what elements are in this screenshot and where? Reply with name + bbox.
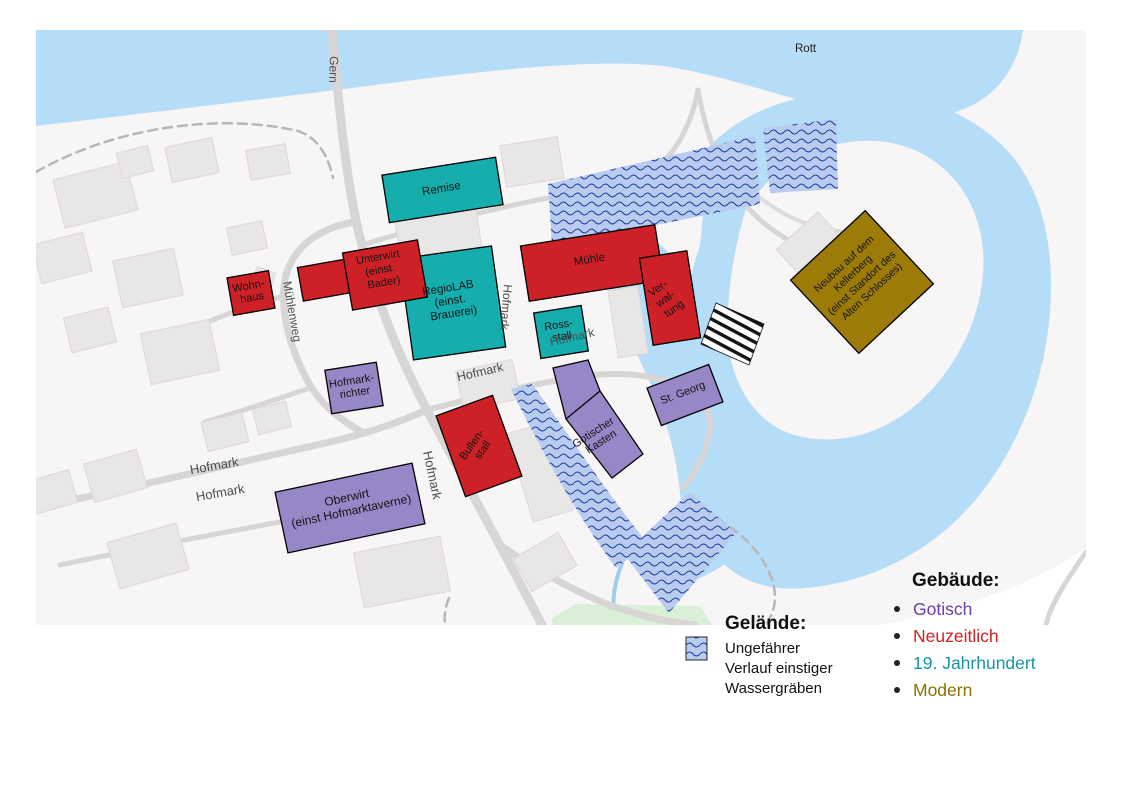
- legend-terrain-line-2: Verlauf einstiger: [725, 660, 833, 677]
- bullet-icon: [894, 687, 900, 693]
- water-ditch-area-northeast: [763, 119, 838, 193]
- map-canvas: Remise RegioLAB (einst. Brauerei) Ross- …: [26, 30, 1086, 625]
- legend-buildings-title: Gebäude:: [912, 570, 1000, 591]
- legend-item-modern: Modern: [913, 680, 972, 700]
- legend-terrain-line-3: Wassergräben: [725, 680, 822, 697]
- legend-terrain-swatch: [686, 637, 707, 660]
- bullet-icon: [894, 660, 900, 666]
- historic-town-map: Remise RegioLAB (einst. Brauerei) Ross- …: [0, 0, 1123, 794]
- legend-terrain-title: Gelände:: [725, 613, 806, 634]
- legend-terrain: Gelände: Ungefährer Verlauf einstiger Wa…: [686, 613, 833, 697]
- river-label-rott: Rott: [795, 43, 817, 55]
- bullet-icon: [894, 633, 900, 639]
- bullet-icon: [894, 606, 900, 612]
- legend-terrain-line-1: Ungefährer: [725, 640, 800, 657]
- legend-item-19-jahrhundert: 19. Jahrhundert: [913, 653, 1036, 673]
- street-label-gern: Gern: [326, 56, 341, 83]
- legend-item-gotisch: Gotisch: [913, 599, 972, 619]
- legend-item-neuzeitlich: Neuzeitlich: [913, 626, 999, 646]
